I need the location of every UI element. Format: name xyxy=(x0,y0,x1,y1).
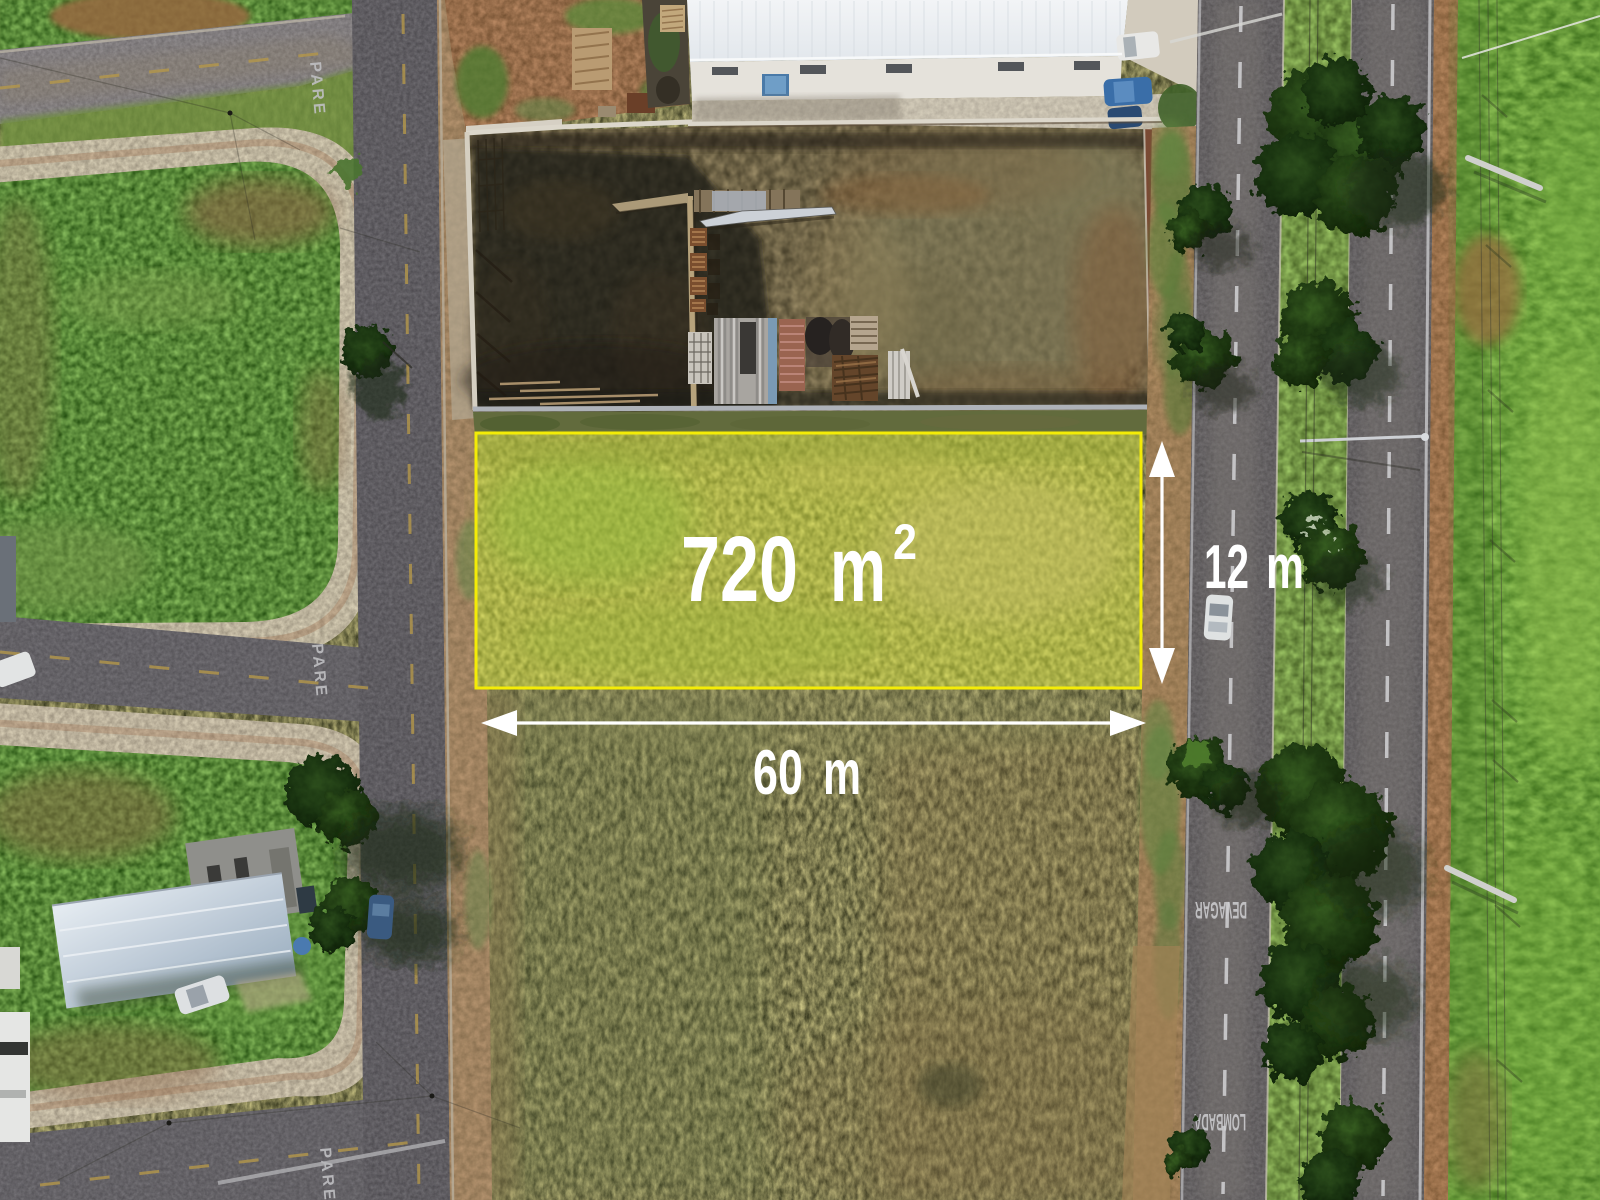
svg-text:60: 60 xyxy=(753,738,803,808)
svg-text:2: 2 xyxy=(893,514,917,570)
svg-text:m: m xyxy=(1266,533,1304,602)
svg-text:12: 12 xyxy=(1204,533,1249,602)
svg-text:m: m xyxy=(830,517,886,621)
svg-text:DEVAGAR: DEVAGAR xyxy=(1195,896,1247,923)
svg-text:m: m xyxy=(823,738,861,808)
svg-text:720: 720 xyxy=(681,517,798,621)
